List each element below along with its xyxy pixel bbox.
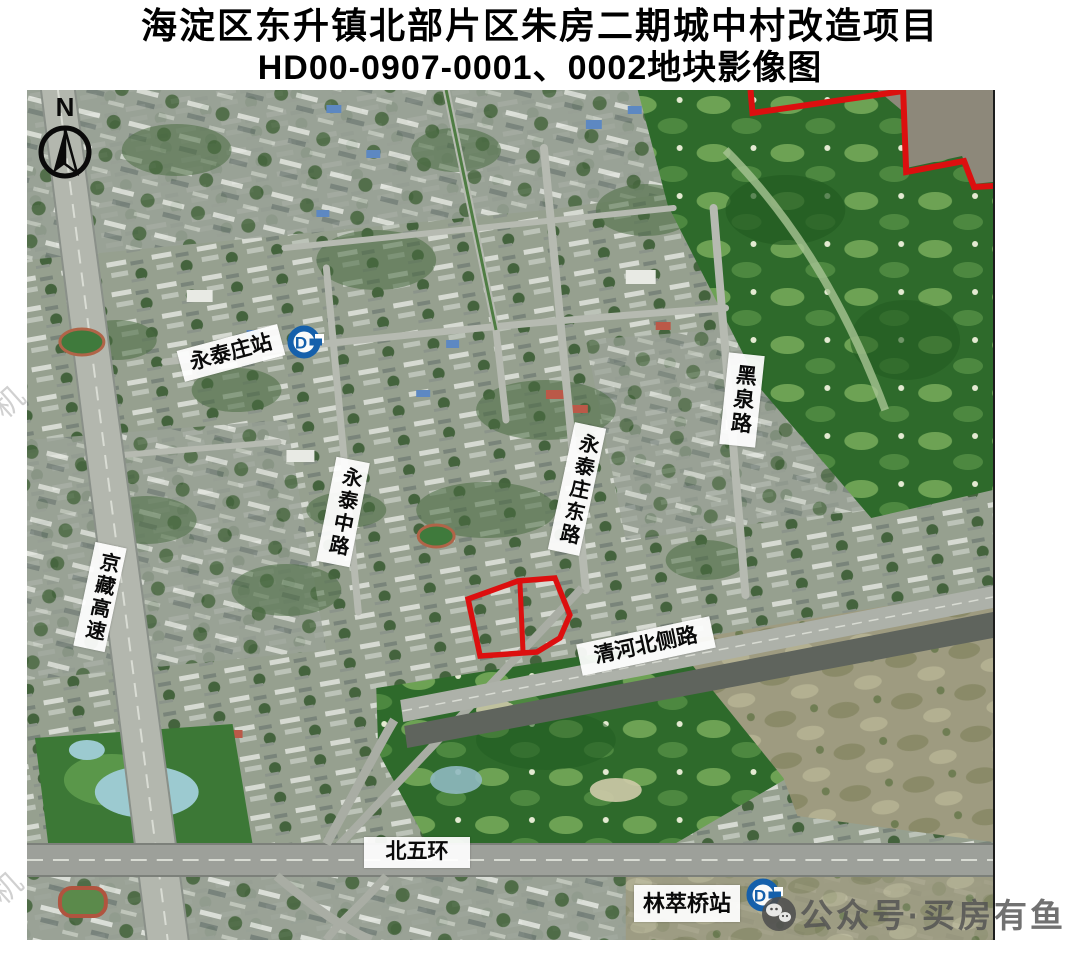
north-arrow-icon [37, 124, 93, 180]
page-title: 海淀区东升镇北部片区朱房二期城中村改造项目 [0, 4, 1080, 48]
satellite-imagery [27, 90, 993, 940]
svg-text:D: D [295, 334, 307, 353]
watermark-text: 公众号·买房有鱼 [800, 889, 1066, 937]
road-label-north-fifth-ring: 北五环 [364, 837, 470, 868]
page-subtitle: HD00-0907-0001、0002地块影像图 [0, 48, 1080, 88]
parcel-divider-line [520, 583, 523, 651]
north-compass: N [35, 94, 95, 185]
beijing-subway-icon: D [284, 322, 324, 362]
compass-n-label: N [35, 94, 95, 120]
satellite-map: N 永泰庄站 D 黑泉路 永泰中路 永泰庄东路 京藏高速 清河北侧路 北五环 林… [27, 90, 995, 940]
station-label-lincuiqiao: 林萃桥站 [634, 885, 740, 922]
wechat-icon [760, 895, 798, 933]
